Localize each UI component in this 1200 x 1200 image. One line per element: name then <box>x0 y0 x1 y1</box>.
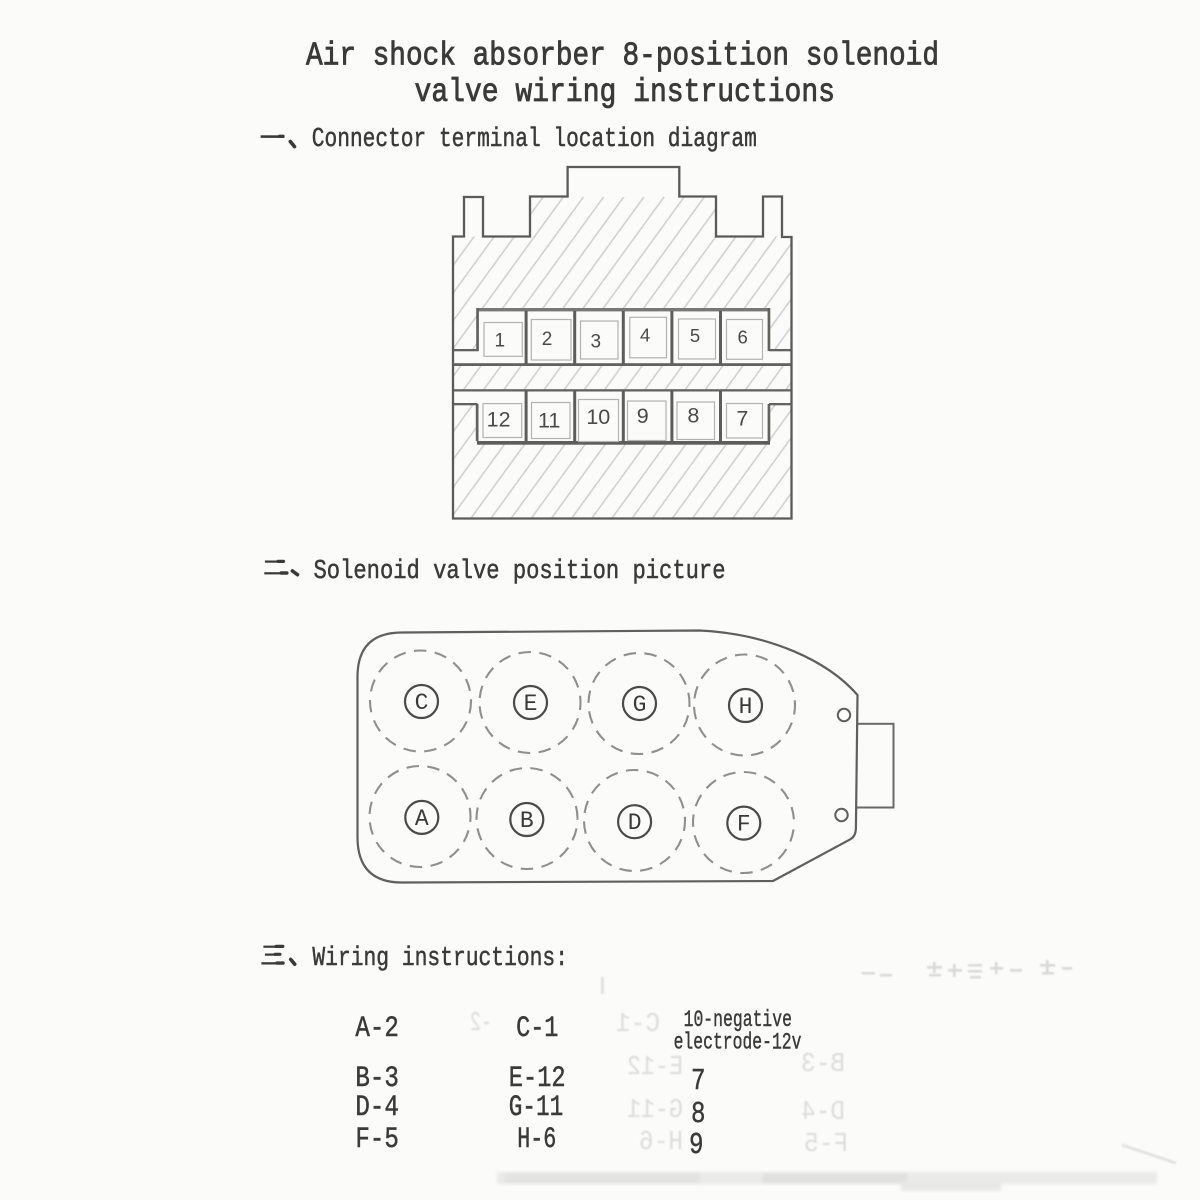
svg-text:3: 3 <box>591 331 602 352</box>
svg-text:11: 11 <box>538 408 560 432</box>
svg-text:C: C <box>415 690 429 716</box>
svg-text:-2: -2 <box>470 1009 492 1039</box>
svg-text:valve wiring instructions: valve wiring instructions <box>415 74 836 112</box>
svg-text:H-6: H-6 <box>639 1128 683 1158</box>
svg-text:F-5: F-5 <box>355 1123 399 1156</box>
svg-text:10: 10 <box>586 405 610 429</box>
svg-text:H: H <box>739 694 753 720</box>
svg-text:Wiring instructions:: Wiring instructions: <box>312 944 568 974</box>
svg-text:A: A <box>415 806 429 832</box>
svg-text:F: F <box>737 812 751 838</box>
svg-text:A-2: A-2 <box>355 1012 399 1045</box>
svg-text:7: 7 <box>691 1065 706 1099</box>
svg-text:F-5: F-5 <box>804 1130 848 1160</box>
svg-text:D-4: D-4 <box>355 1091 399 1124</box>
svg-text:9: 9 <box>689 1129 704 1163</box>
svg-text:12: 12 <box>487 407 511 431</box>
svg-text:2: 2 <box>542 329 553 350</box>
svg-text:E: E <box>524 691 538 717</box>
svg-text:9: 9 <box>637 404 649 428</box>
svg-text:C-1: C-1 <box>516 1012 558 1045</box>
svg-text:G-11: G-11 <box>509 1091 563 1124</box>
svg-text:D-4: D-4 <box>801 1098 845 1128</box>
svg-text:C-1: C-1 <box>616 1010 660 1040</box>
svg-text:Solenoid valve position pictur: Solenoid valve position picture <box>314 557 726 587</box>
svg-text:1: 1 <box>495 331 506 352</box>
svg-text:D: D <box>628 810 642 836</box>
svg-text:7: 7 <box>736 407 748 431</box>
svg-text:electrode-12v: electrode-12v <box>674 1029 802 1056</box>
svg-text:B: B <box>520 808 534 834</box>
svg-text:8: 8 <box>691 1098 706 1132</box>
svg-text:B-3: B-3 <box>801 1050 845 1080</box>
svg-text:H-6: H-6 <box>517 1123 556 1156</box>
svg-text:6: 6 <box>738 327 748 348</box>
svg-text:G: G <box>633 692 647 718</box>
svg-text:Air shock absorber 8-position: Air shock absorber 8-position solenoid <box>306 38 939 76</box>
svg-text:E-12: E-12 <box>627 1053 683 1083</box>
svg-text:Connector terminal location di: Connector terminal location diagram <box>312 125 757 155</box>
svg-text:8: 8 <box>687 404 699 428</box>
svg-text:4: 4 <box>640 324 650 345</box>
svg-text:5: 5 <box>690 325 700 346</box>
svg-text:G-11: G-11 <box>627 1096 683 1126</box>
